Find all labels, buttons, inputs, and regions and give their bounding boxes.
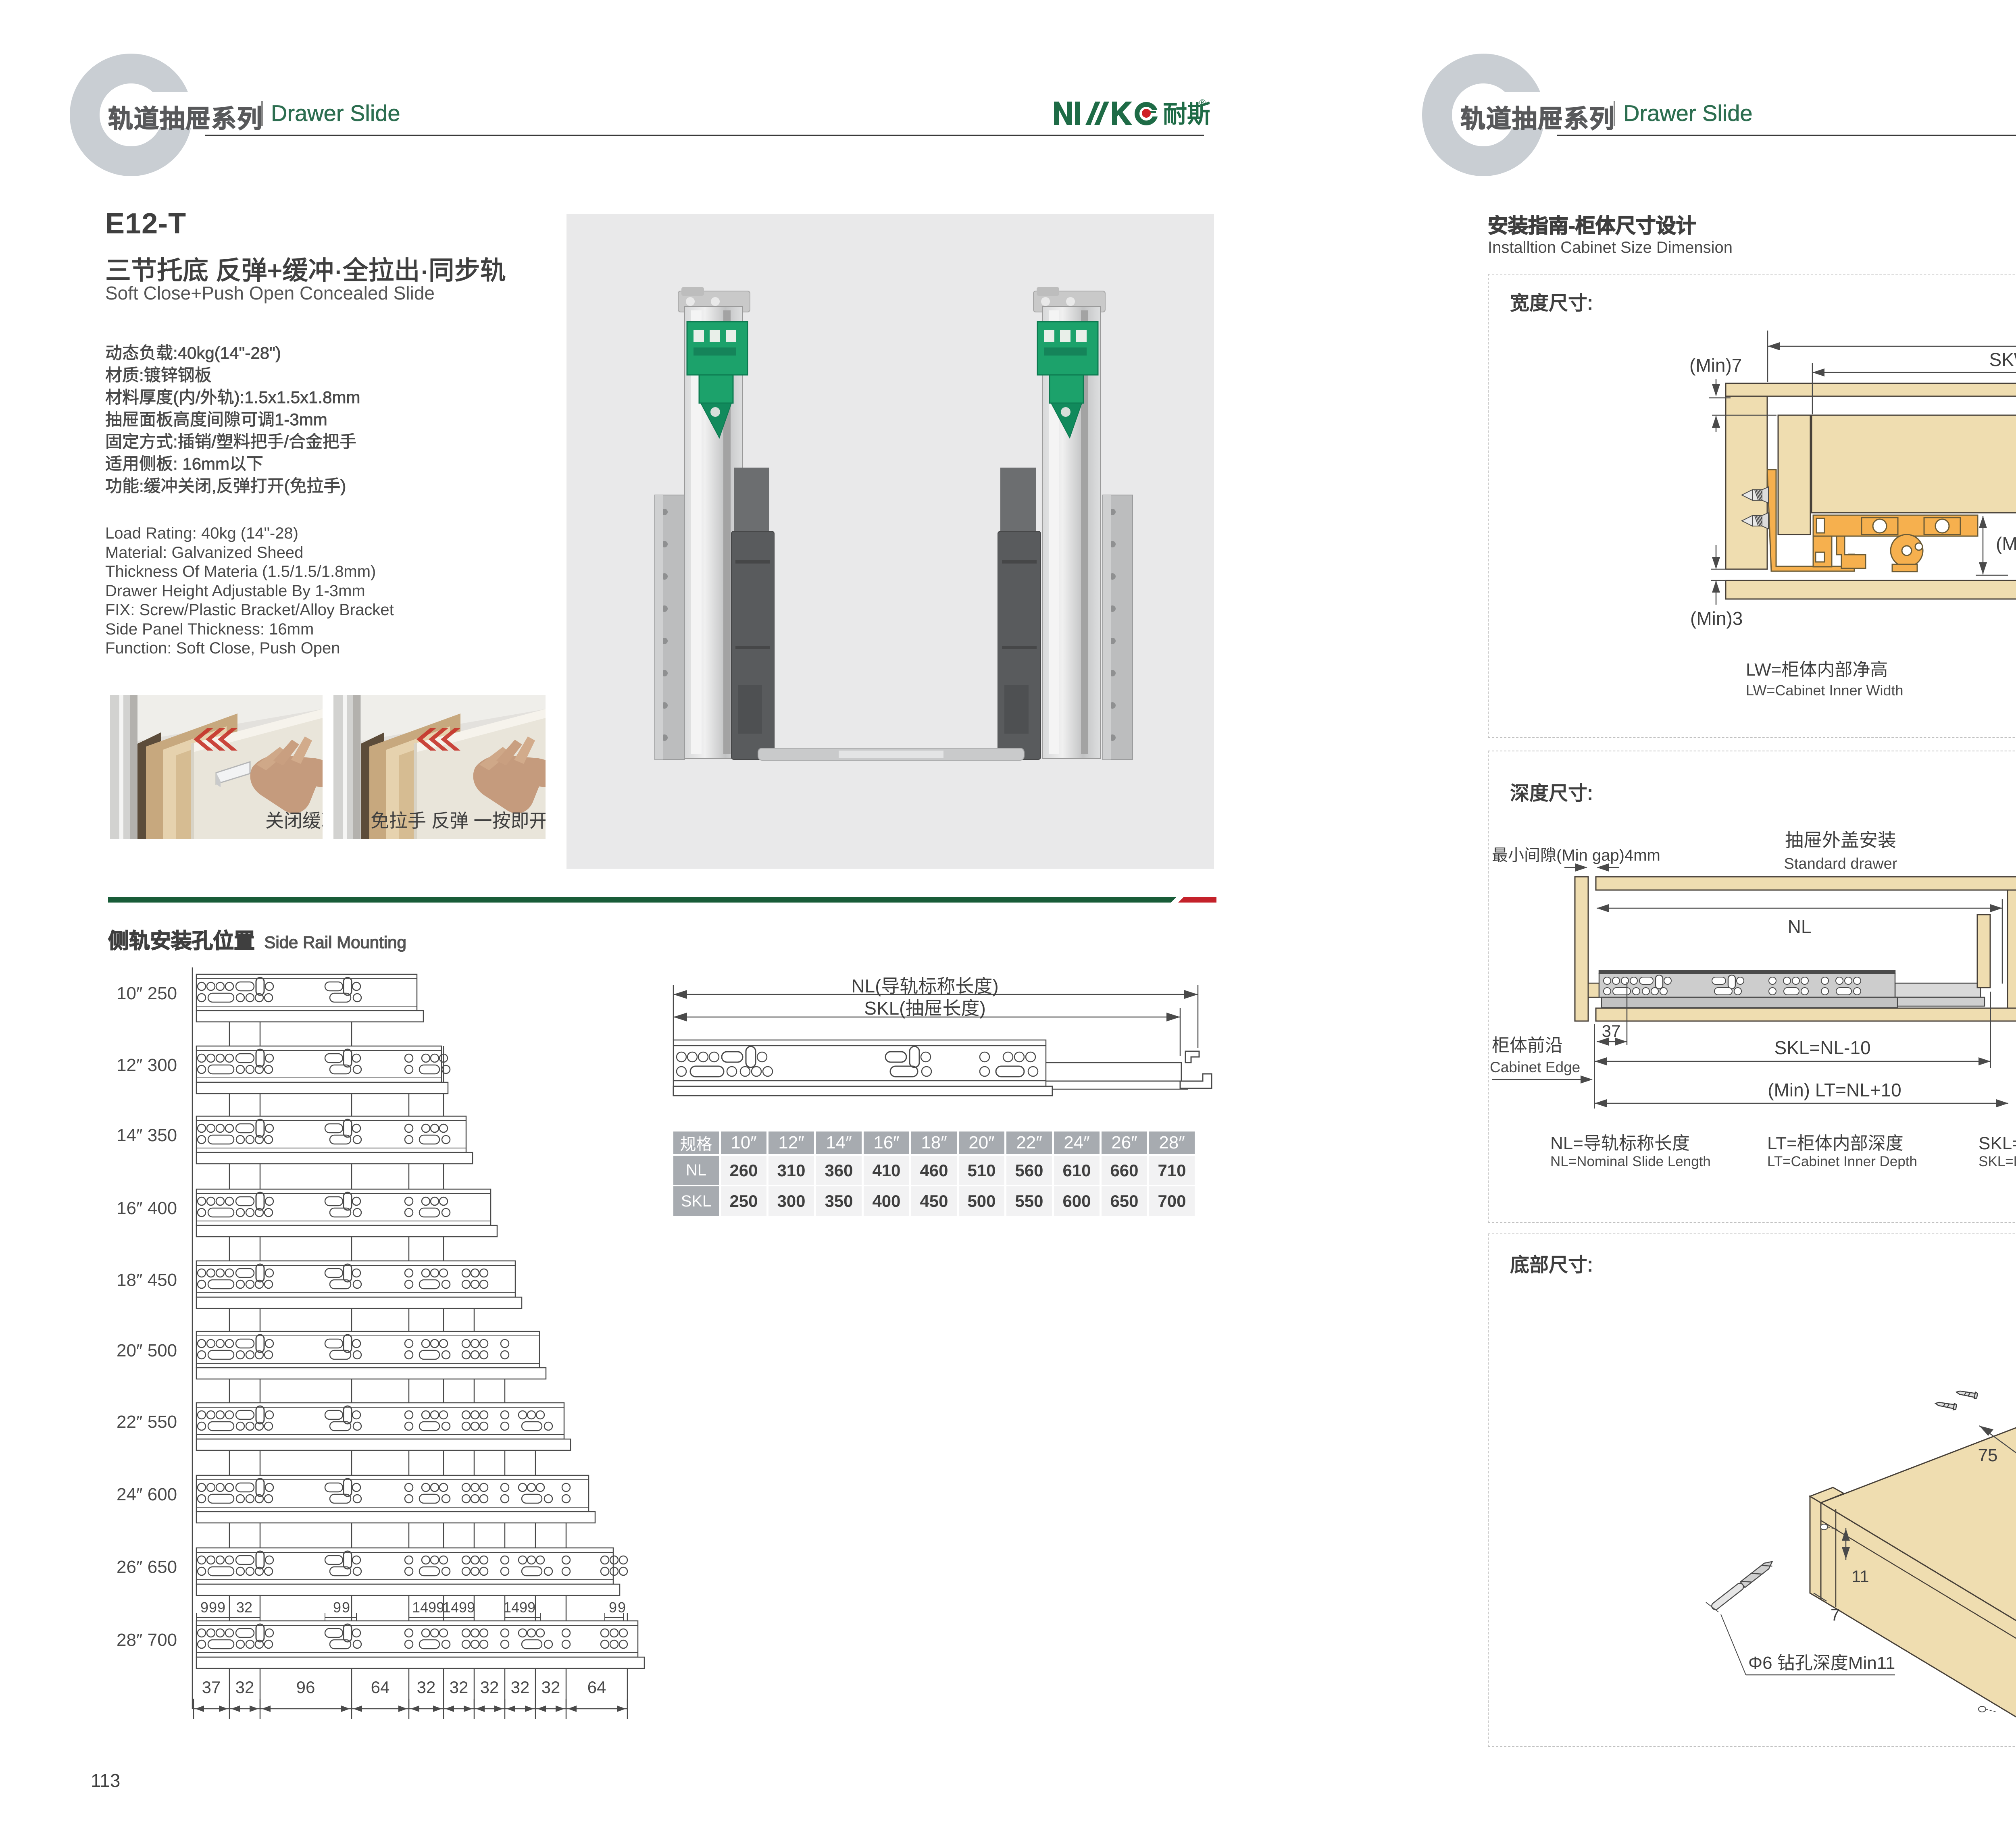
- svg-text:11: 11: [1851, 1567, 1869, 1586]
- svg-text:Φ6 钻孔深度Min11: Φ6 钻孔深度Min11: [1748, 1653, 1895, 1673]
- svg-text:75: 75: [1978, 1446, 1998, 1465]
- svg-text:7: 7: [1831, 1605, 1840, 1624]
